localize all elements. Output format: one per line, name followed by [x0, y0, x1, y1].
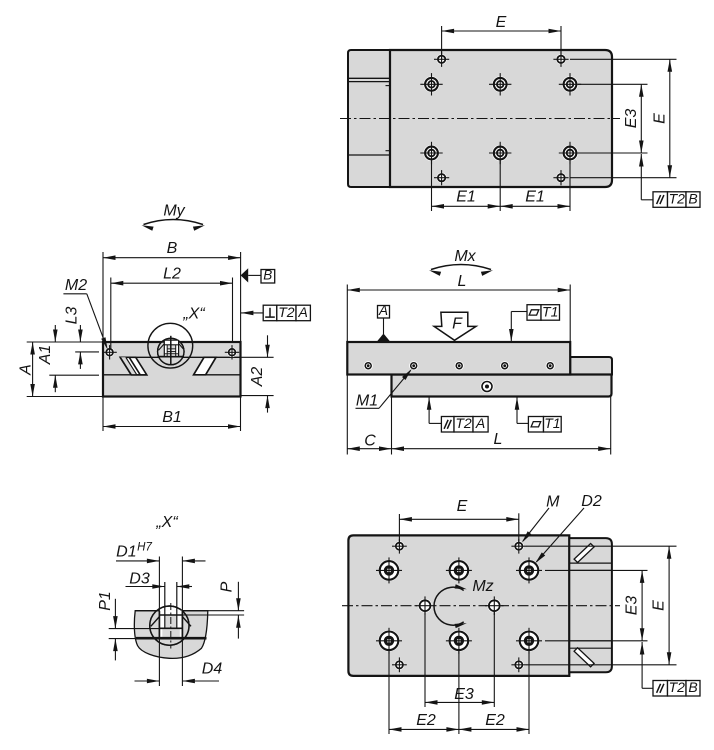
- svg-text:E: E: [651, 113, 668, 124]
- svg-text:E1: E1: [525, 189, 545, 206]
- svg-text:E3: E3: [623, 109, 640, 129]
- svg-text:„X“: „X“: [155, 514, 179, 531]
- svg-text:A: A: [475, 415, 485, 431]
- svg-text:T2: T2: [669, 679, 686, 695]
- svg-text:E2: E2: [416, 712, 436, 729]
- svg-text:L: L: [458, 273, 467, 290]
- svg-text:B: B: [263, 268, 272, 283]
- svg-text:P1: P1: [97, 591, 114, 611]
- svg-text:E: E: [457, 498, 468, 515]
- svg-text:F: F: [452, 315, 463, 332]
- svg-text:B: B: [167, 240, 178, 257]
- svg-text:A: A: [298, 304, 308, 320]
- svg-text:A: A: [18, 364, 35, 376]
- svg-text:P: P: [219, 581, 236, 592]
- svg-text:E: E: [651, 600, 668, 611]
- svg-text:L2: L2: [163, 266, 181, 283]
- svg-text:B1: B1: [162, 409, 182, 426]
- svg-text:„X“: „X“: [182, 306, 206, 323]
- svg-text:A1: A1: [37, 345, 54, 366]
- svg-text:Mz: Mz: [472, 578, 493, 595]
- svg-text:L: L: [494, 431, 503, 448]
- svg-text:E3: E3: [624, 596, 641, 616]
- svg-text:E1: E1: [456, 189, 476, 206]
- svg-text:E3: E3: [454, 686, 474, 703]
- svg-text:B: B: [688, 190, 697, 206]
- svg-text:C: C: [364, 433, 376, 450]
- svg-text:D2: D2: [581, 493, 602, 510]
- svg-text:T2: T2: [455, 415, 472, 431]
- svg-text:Mx: Mx: [454, 248, 476, 265]
- svg-text:T1: T1: [542, 303, 558, 319]
- svg-text:M2: M2: [65, 277, 87, 294]
- svg-text:T1: T1: [544, 415, 560, 431]
- svg-text:A2: A2: [249, 367, 266, 388]
- svg-text:My: My: [163, 203, 185, 220]
- svg-text:D1: D1: [116, 543, 136, 560]
- svg-text:D3: D3: [129, 570, 150, 587]
- svg-text:M1: M1: [356, 393, 378, 410]
- svg-text:E: E: [496, 14, 507, 31]
- svg-text:T2: T2: [669, 190, 686, 206]
- svg-text:M: M: [546, 494, 560, 511]
- svg-text:T2: T2: [278, 304, 295, 320]
- svg-text:L3: L3: [64, 307, 81, 325]
- svg-text:E2: E2: [485, 712, 505, 729]
- svg-text:B: B: [688, 679, 697, 695]
- svg-text:H7: H7: [137, 542, 152, 554]
- svg-text:A: A: [378, 303, 388, 318]
- svg-text:D4: D4: [202, 661, 223, 678]
